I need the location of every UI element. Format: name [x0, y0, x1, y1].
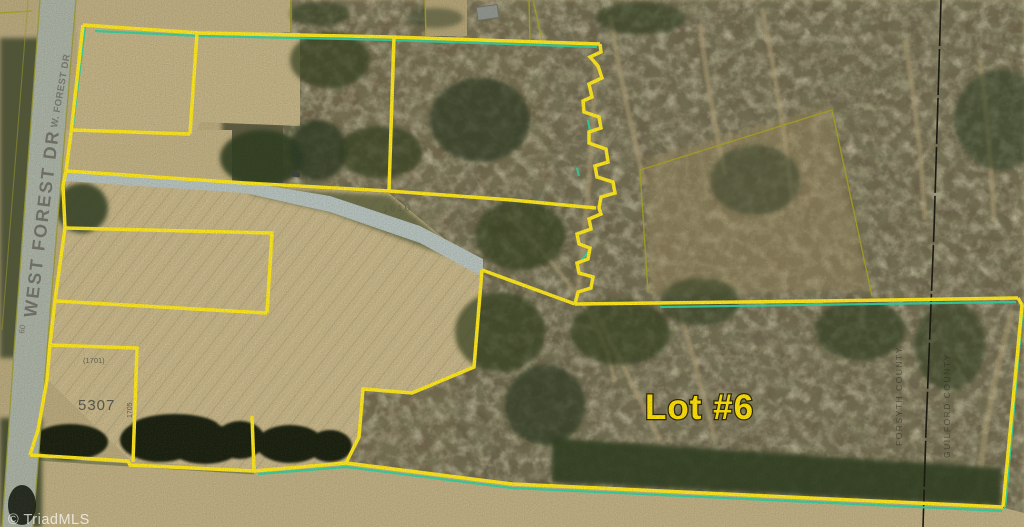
mls-watermark: © TriadMLS: [8, 512, 90, 527]
map-canvas: WEST FOREST DR W. FOREST DR 60 5307 (170…: [0, 0, 1024, 527]
photo-grain: [0, 0, 1024, 527]
aerial-parcel-map: WEST FOREST DR W. FOREST DR 60 5307 (170…: [0, 0, 1024, 527]
